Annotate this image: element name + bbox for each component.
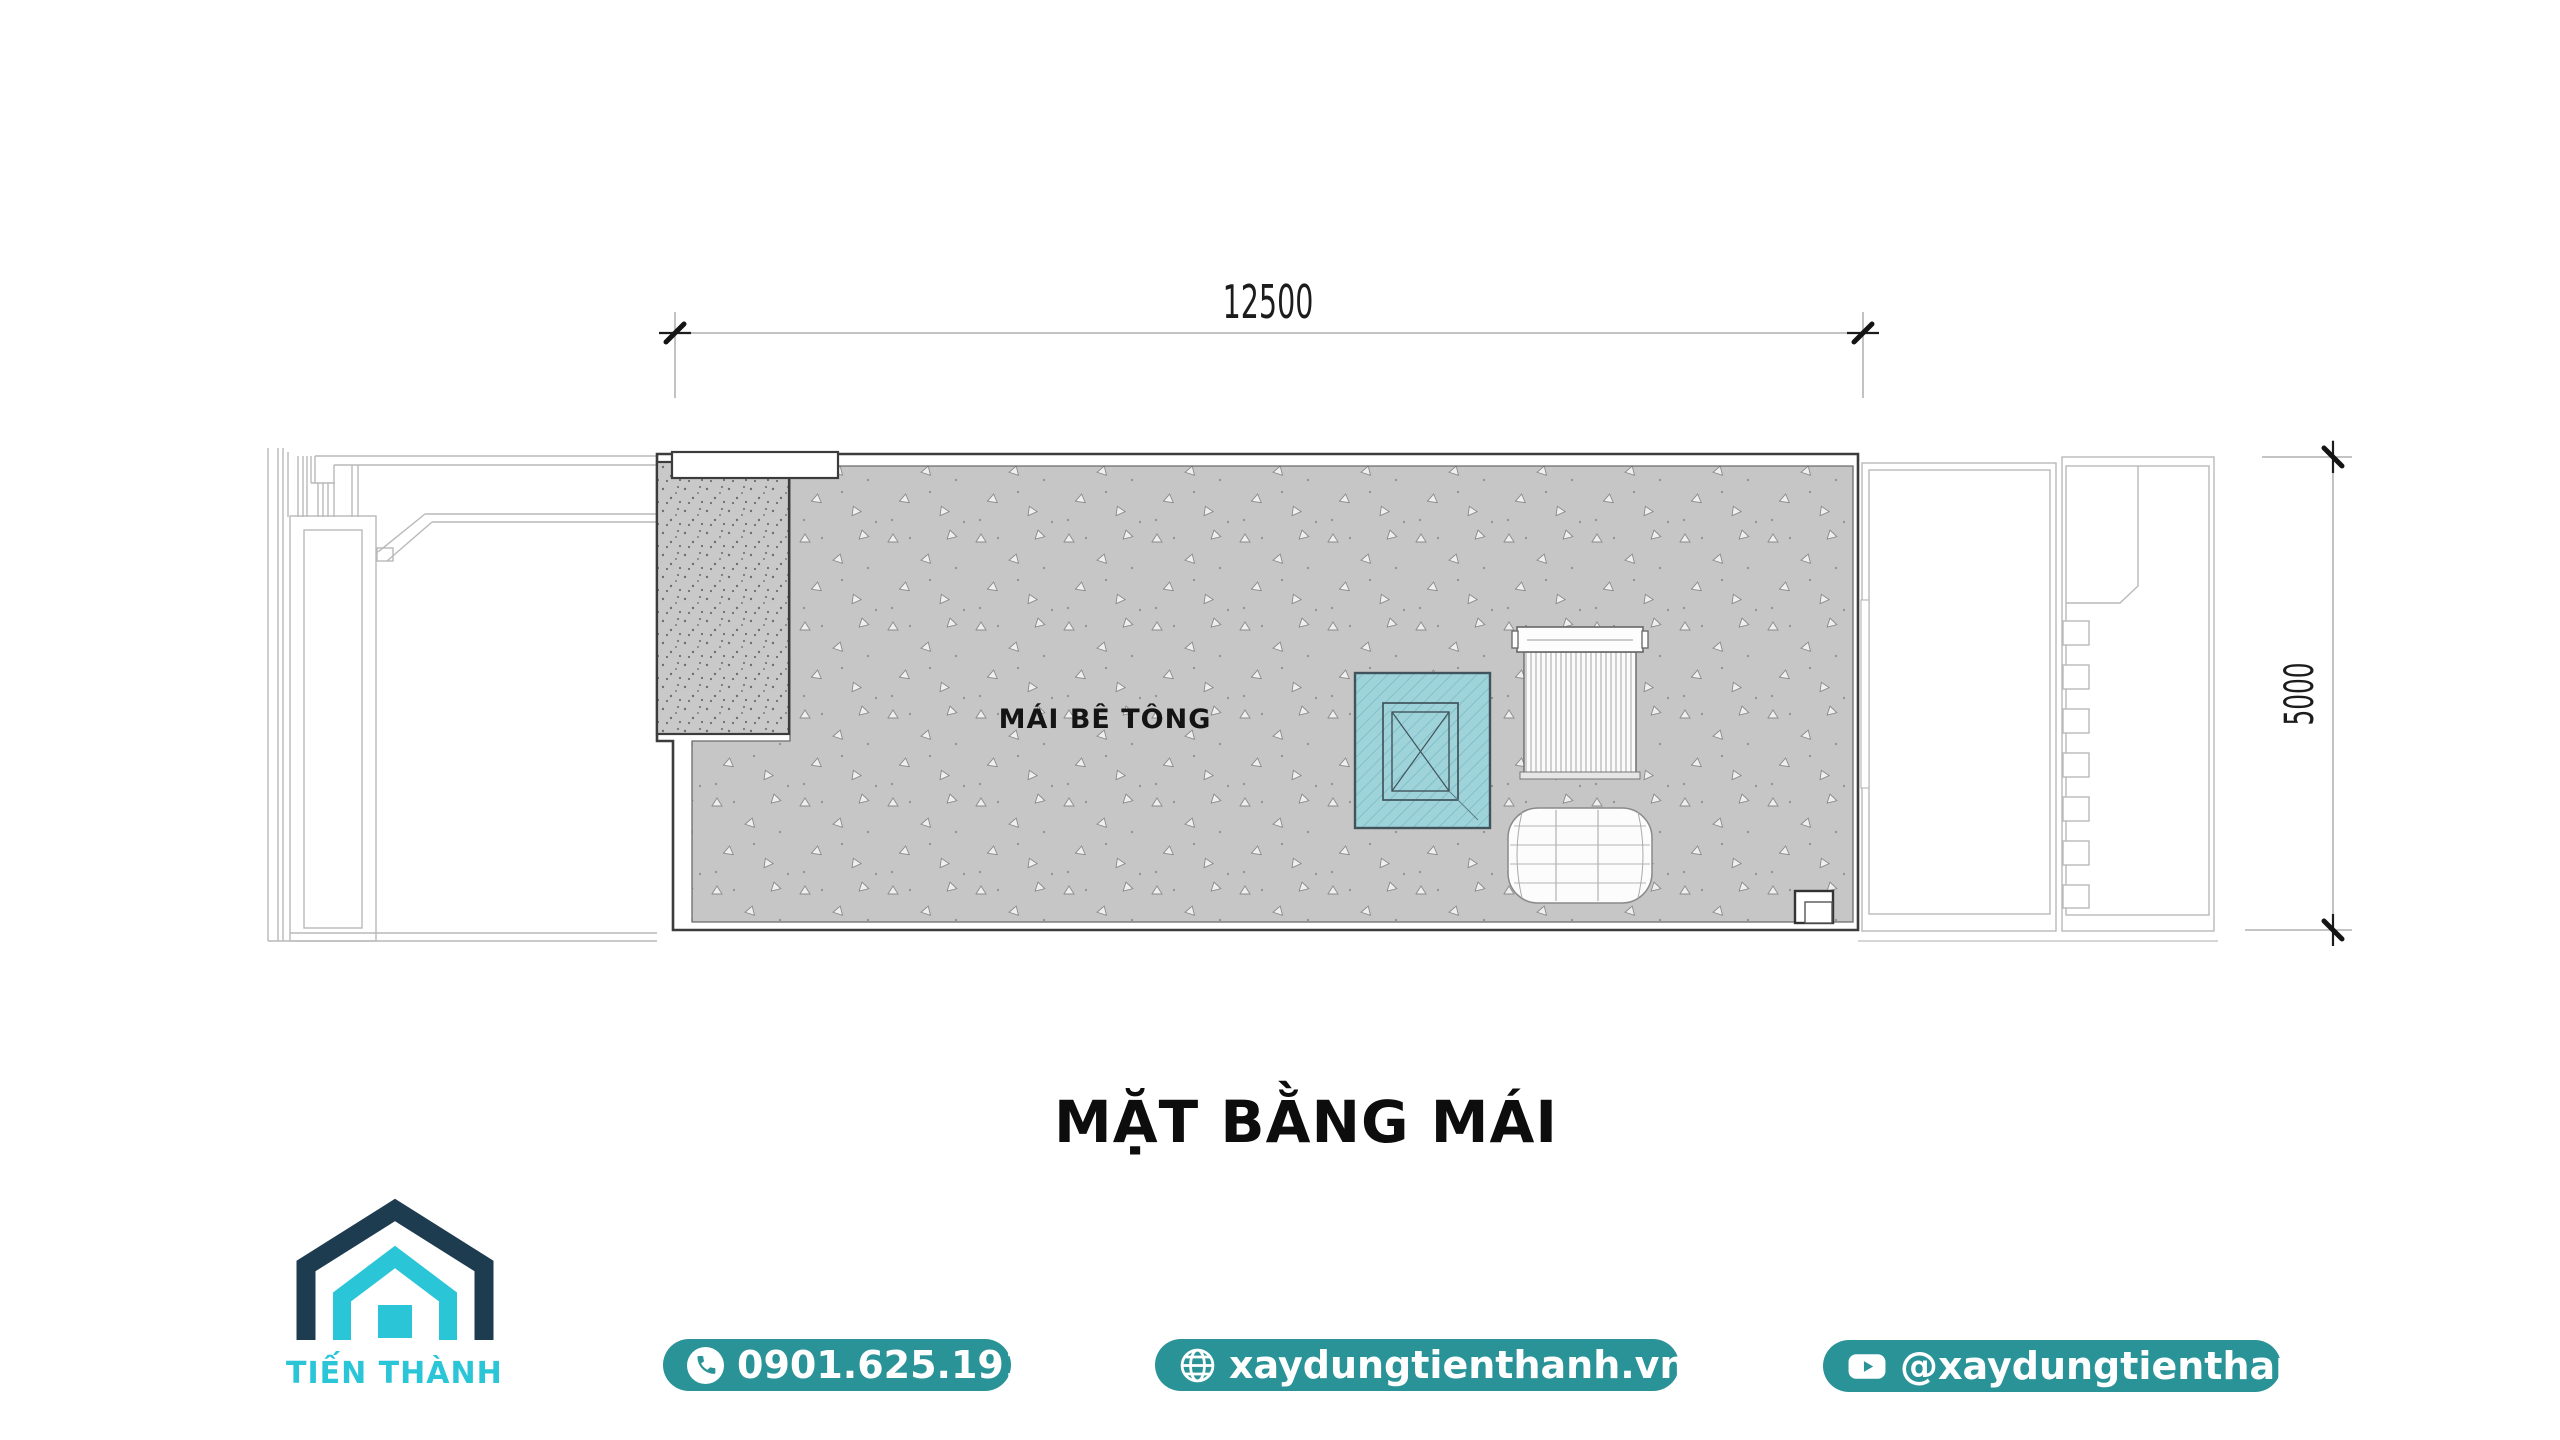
- right-neighbor-outline: [1858, 457, 2218, 941]
- phone-icon: [687, 1347, 724, 1384]
- plan-title: MẶT BẰNG MÁI: [1000, 1088, 1612, 1156]
- page: 12500 5000 MÁI BÊ TÔNG MẶT BẰNG MÁI TIẾN…: [0, 0, 2560, 1440]
- globe-icon: [1179, 1347, 1216, 1384]
- youtube-button[interactable]: @xaydungtienthanh: [1823, 1340, 2281, 1392]
- website-url: xaydungtienthanh.vn: [1229, 1339, 1687, 1391]
- company-name: TIẾN THÀNH: [286, 1356, 502, 1391]
- website-button[interactable]: xaydungtienthanh.vn: [1155, 1339, 1679, 1391]
- left-neighbor-outline: [268, 448, 657, 941]
- dimension-height-label: 5000: [2248, 662, 2352, 726]
- water-tank: [1512, 627, 1648, 779]
- dimension-width-label: 12500: [1194, 279, 1343, 325]
- cylinder-tank: [1508, 808, 1652, 903]
- house-logo-icon: [286, 1194, 502, 1344]
- company-logo: TIẾN THÀNH: [286, 1194, 502, 1391]
- gravel-canopy: [657, 462, 789, 734]
- youtube-icon: [1847, 1348, 1887, 1385]
- phone-button[interactable]: 0901.625.191: [663, 1339, 1011, 1391]
- skylight: [1355, 673, 1490, 828]
- roof-drain-box: [1795, 891, 1833, 923]
- side-ledge: [1861, 600, 1869, 788]
- phone-number: 0901.625.191: [737, 1339, 1030, 1391]
- roof-material-label: MÁI BÊ TÔNG: [965, 704, 1245, 735]
- concrete-roof-surface: [692, 466, 1853, 922]
- roof-beam: [672, 452, 838, 478]
- roof-outline: [657, 452, 1869, 930]
- youtube-handle: @xaydungtienthanh: [1900, 1340, 2329, 1392]
